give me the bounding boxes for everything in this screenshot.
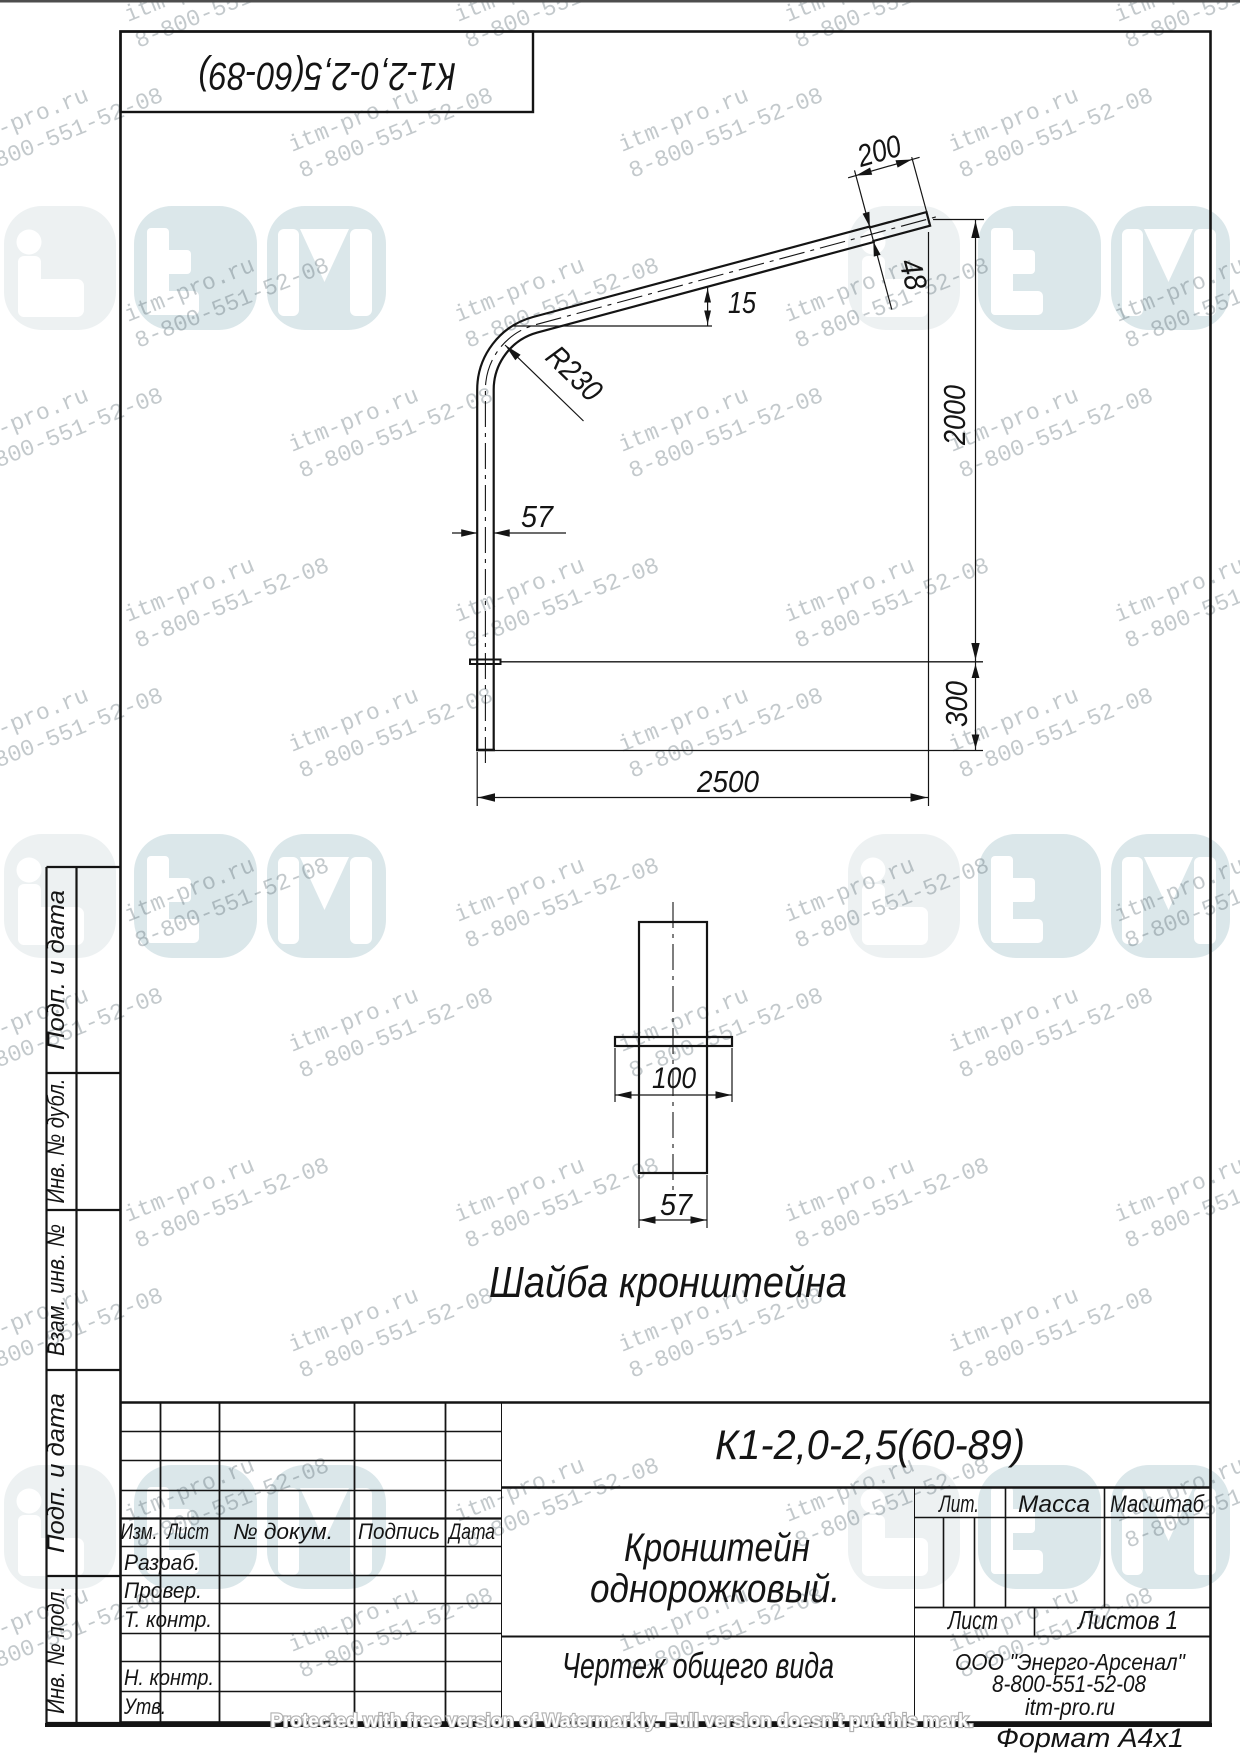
svg-text:itm-pro.ru8-800-551-52-08: itm-pro.ru8-800-551-52-08: [0, 0, 3, 54]
svg-text:itm-pro.ru8-800-551-52-08: itm-pro.ru8-800-551-52-08: [285, 957, 497, 1085]
svg-text:Шайба кронштейна: Шайба кронштейна: [489, 1258, 847, 1307]
svg-text:Инв. № подл.: Инв. № подл.: [43, 1586, 70, 1714]
svg-text:Т. контр.: Т. контр.: [124, 1607, 212, 1632]
svg-text:Подп. и дата: Подп. и дата: [43, 1393, 70, 1553]
svg-text:itm-pro.ru8-800-551-52-08: itm-pro.ru8-800-551-52-08: [0, 1427, 3, 1555]
svg-text:Разраб.: Разраб.: [124, 1550, 200, 1575]
svg-text:Утв.: Утв.: [123, 1694, 166, 1719]
svg-text:57: 57: [660, 1187, 694, 1222]
svg-text:itm-pro.ru8-800-551-52-08: itm-pro.ru8-800-551-52-08: [0, 957, 167, 1085]
svg-text:300: 300: [939, 681, 974, 727]
svg-text:itm-pro.ru8-800-551-52-08: itm-pro.ru8-800-551-52-08: [0, 1257, 167, 1385]
svg-text:Подпись: Подпись: [358, 1519, 440, 1544]
svg-text:Масса: Масса: [1018, 1491, 1090, 1518]
svg-text:Изм.: Изм.: [121, 1519, 158, 1544]
svg-text:2000: 2000: [937, 385, 972, 446]
svg-text:itm-pro.ru8-800-551-52-08: itm-pro.ru8-800-551-52-08: [615, 357, 827, 485]
svg-text:Лист: Лист: [947, 1605, 998, 1635]
svg-text:Провер.: Провер.: [124, 1578, 202, 1603]
svg-text:itm-pro.ru8-800-551-52-08: itm-pro.ru8-800-551-52-08: [781, 1127, 993, 1255]
svg-text:R230: R230: [539, 339, 609, 409]
svg-text:itm-pro.ru8-800-551-52-08: itm-pro.ru8-800-551-52-08: [121, 527, 333, 655]
svg-text:itm-pro.ru8-800-551-52-08: itm-pro.ru8-800-551-52-08: [451, 527, 663, 655]
svg-text:Взам. инв. №: Взам. инв. №: [43, 1224, 70, 1356]
svg-text:itm-pro.ru8-800-551-52-08: itm-pro.ru8-800-551-52-08: [1111, 527, 1240, 655]
svg-text:itm-pro.ru8-800-551-52-08: itm-pro.ru8-800-551-52-08: [615, 57, 827, 185]
svg-text:Чертеж общего вида: Чертеж общего вида: [562, 1645, 834, 1686]
svg-text:itm-pro.ru8-800-551-52-08: itm-pro.ru8-800-551-52-08: [0, 1127, 3, 1255]
svg-text:itm-pro.ru8-800-551-52-08: itm-pro.ru8-800-551-52-08: [0, 227, 3, 355]
svg-text:itm-pro.ru8-800-551-52-08: itm-pro.ru8-800-551-52-08: [451, 1127, 663, 1255]
svg-text:2500: 2500: [696, 764, 759, 799]
svg-text:57: 57: [521, 499, 555, 534]
svg-text:Лит.: Лит.: [938, 1491, 979, 1518]
svg-text:Подп. и дата: Подп. и дата: [43, 890, 70, 1050]
svg-text:Инв. № дубл.: Инв. № дубл.: [43, 1079, 70, 1204]
svg-text:Н. контр.: Н. контр.: [124, 1665, 214, 1690]
svg-text:itm-pro.ru8-800-551-52-08: itm-pro.ru8-800-551-52-08: [615, 957, 827, 1085]
svg-text:itm-pro.ru8-800-551-52-08: itm-pro.ru8-800-551-52-08: [1111, 0, 1240, 54]
svg-text:itm-pro.ru8-800-551-52-08: itm-pro.ru8-800-551-52-08: [451, 0, 663, 54]
svg-text:Дата: Дата: [447, 1519, 495, 1544]
svg-text:itm-pro.ru: itm-pro.ru: [1025, 1694, 1115, 1720]
svg-text:itm-pro.ru8-800-551-52-08: itm-pro.ru8-800-551-52-08: [945, 57, 1157, 185]
svg-text:itm-pro.ru8-800-551-52-08: itm-pro.ru8-800-551-52-08: [121, 1127, 333, 1255]
svg-text:100: 100: [652, 1062, 696, 1095]
svg-text:itm-pro.ru8-800-551-52-08: itm-pro.ru8-800-551-52-08: [1111, 1127, 1240, 1255]
svg-text:itm-pro.ru8-800-551-52-08: itm-pro.ru8-800-551-52-08: [0, 527, 3, 655]
svg-text:Лист: Лист: [166, 1519, 209, 1544]
svg-text:itm-pro.ru8-800-551-52-08: itm-pro.ru8-800-551-52-08: [0, 657, 167, 785]
svg-text:itm-pro.ru8-800-551-52-08: itm-pro.ru8-800-551-52-08: [0, 827, 3, 955]
svg-text:Protected with free version of: Protected with free version of Watermark…: [270, 1711, 973, 1732]
svg-text:К1-2,0-2,5(60-89): К1-2,0-2,5(60-89): [198, 54, 456, 97]
svg-text:№ докум.: № докум.: [233, 1519, 333, 1544]
svg-text:Листов 1: Листов 1: [1076, 1605, 1178, 1635]
svg-text:200: 200: [852, 128, 905, 174]
svg-text:itm-pro.ru8-800-551-52-08: itm-pro.ru8-800-551-52-08: [0, 57, 167, 185]
svg-text:itm-pro.ru8-800-551-52-08: itm-pro.ru8-800-551-52-08: [781, 527, 993, 655]
svg-text:itm-pro.ru8-800-551-52-08: itm-pro.ru8-800-551-52-08: [0, 357, 167, 485]
svg-text:itm-pro.ru8-800-551-52-08: itm-pro.ru8-800-551-52-08: [945, 357, 1157, 485]
svg-text:itm-pro.ru8-800-551-52-08: itm-pro.ru8-800-551-52-08: [945, 957, 1157, 1085]
svg-text:itm-pro.ru8-800-551-52-08: itm-pro.ru8-800-551-52-08: [285, 657, 497, 785]
svg-text:Кронштейн: Кронштейн: [624, 1526, 810, 1570]
svg-text:itm-pro.ru8-800-551-52-08: itm-pro.ru8-800-551-52-08: [781, 0, 993, 54]
svg-text:itm-pro.ru8-800-551-52-08: itm-pro.ru8-800-551-52-08: [121, 0, 333, 54]
svg-text:Масштаб: Масштаб: [1110, 1491, 1205, 1518]
svg-text:itm-pro.ru8-800-551-52-08: itm-pro.ru8-800-551-52-08: [451, 827, 663, 955]
svg-text:Формат А4х1: Формат А4х1: [996, 1723, 1184, 1753]
svg-text:К1-2,0-2,5(60-89): К1-2,0-2,5(60-89): [715, 1421, 1025, 1468]
svg-text:однорожковый.: однорожковый.: [590, 1567, 840, 1611]
svg-text:itm-pro.ru8-800-551-52-08: itm-pro.ru8-800-551-52-08: [285, 357, 497, 485]
svg-text:itm-pro.ru8-800-551-52-08: itm-pro.ru8-800-551-52-08: [285, 1257, 497, 1385]
svg-text:itm-pro.ru8-800-551-52-08: itm-pro.ru8-800-551-52-08: [945, 1257, 1157, 1385]
svg-text:15: 15: [728, 285, 757, 320]
